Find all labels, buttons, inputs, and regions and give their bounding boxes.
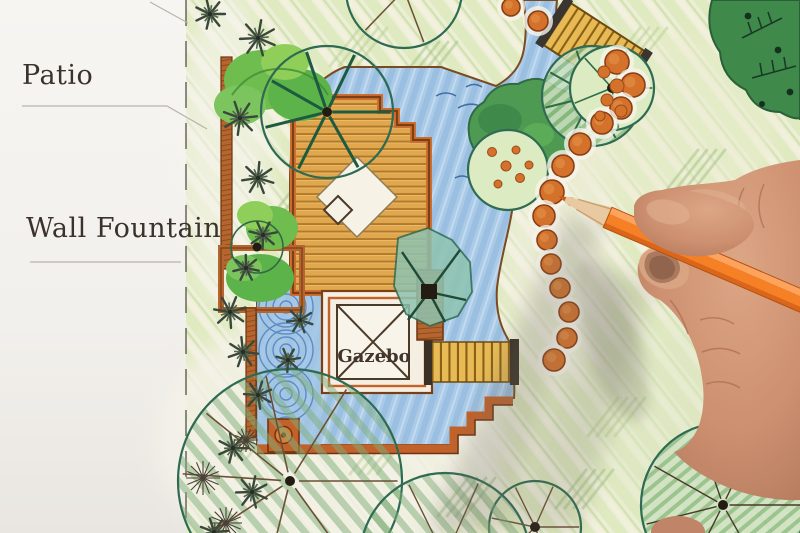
spiky-grass-plant — [234, 428, 258, 452]
fruit-dot — [525, 161, 533, 169]
fruit-dot — [512, 146, 520, 154]
fruit-dot — [516, 174, 525, 183]
fruit-dot — [598, 66, 610, 78]
fruit-dot — [610, 79, 624, 93]
spiky-grass-plant — [186, 461, 220, 495]
patio-label: Patio — [22, 60, 93, 91]
gazebo-label: Gazebo — [337, 346, 410, 367]
fruit-dot — [494, 180, 502, 188]
plan-photo-canvas: Gazebo — [0, 0, 800, 533]
fruit-dot — [488, 148, 497, 157]
fruit-dot — [601, 94, 613, 106]
fruit-dot — [615, 105, 627, 117]
photo-of-landscape-plan: Gazebo — [0, 0, 800, 533]
wall-fountain-label: Wall Fountain — [26, 213, 221, 244]
fruit-dot — [595, 111, 605, 121]
fruit-dot — [501, 161, 511, 171]
stepping-stone — [523, 6, 553, 36]
